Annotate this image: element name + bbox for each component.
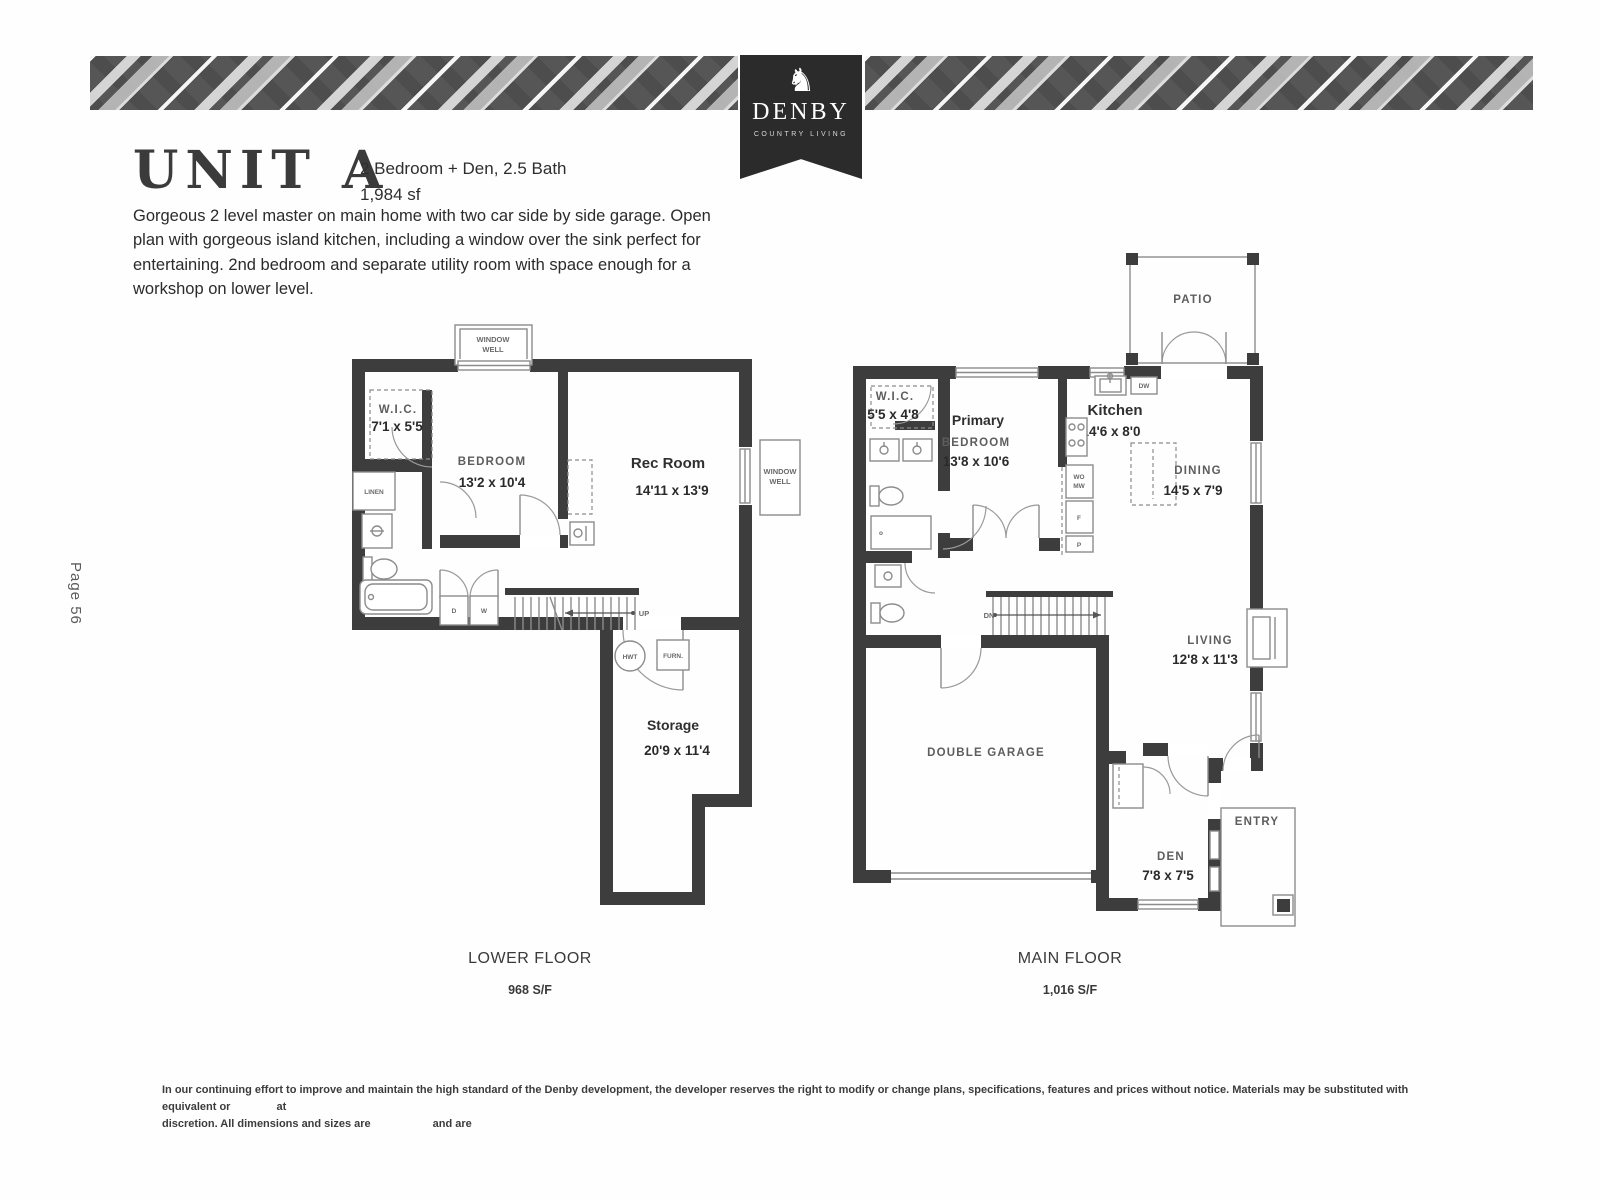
wall-oven-microwave — [1066, 465, 1093, 498]
svg-text:BEDROOM: BEDROOM — [942, 437, 1010, 449]
living-label: LIVING — [1187, 635, 1233, 647]
svg-text:Kitchen: Kitchen — [1087, 402, 1142, 419]
entry-post-core — [1277, 899, 1290, 912]
dining-label: DINING — [1174, 465, 1221, 477]
den-closet — [1113, 764, 1143, 808]
main-floor-name: MAIN FLOOR — [950, 950, 1190, 968]
lower-floor-plan: WINDOW WELL WINDOW WELL W.I.C. 7'1 x 5'5… — [340, 312, 810, 934]
svg-text:PATIO: PATIO — [1173, 294, 1212, 306]
double-garage: DOUBLE GARAGE — [886, 747, 1096, 883]
plaid-banner-right — [865, 56, 1533, 110]
storage-room: HWT FURN. Storage 20'9 x 11'4 — [615, 630, 710, 758]
svg-text:Primary: Primary — [952, 412, 1004, 428]
disclaimer-line1a: In our continuing effort to improve and … — [162, 1084, 1408, 1113]
unit-description: Gorgeous 2 level master on main home wit… — [133, 204, 713, 301]
powder-door-arc — [905, 563, 935, 593]
svg-text:W.I.C.: W.I.C. — [379, 404, 418, 416]
svg-text:BEDROOM: BEDROOM — [458, 456, 526, 468]
brand-name: DENBY — [740, 99, 862, 126]
svg-text:LINEN: LINEN — [364, 489, 384, 496]
horse-head-icon: ♞ — [740, 63, 862, 97]
french-door-left — [973, 505, 1006, 538]
svg-text:P: P — [1077, 542, 1082, 549]
disclaimer-line2b: and are — [433, 1118, 472, 1130]
garage-door-arc — [941, 648, 981, 688]
svg-text:13'8 x 10'6: 13'8 x 10'6 — [943, 454, 1010, 469]
stove — [1066, 418, 1087, 456]
svg-text:13'2 x 10'4: 13'2 x 10'4 — [459, 475, 526, 490]
lower-floor-area: 968 S/F — [420, 983, 640, 997]
brand-tagline: COUNTRY LIVING — [740, 131, 862, 138]
svg-text:DN: DN — [984, 611, 995, 620]
svg-text:W.I.C.: W.I.C. — [876, 391, 915, 403]
disclaimer: In our continuing effort to improve and … — [162, 1082, 1452, 1133]
svg-text:ENTRY: ENTRY — [1235, 816, 1280, 828]
svg-text:14'11 x 13'9: 14'11 x 13'9 — [635, 483, 708, 498]
svg-text:20'9 x 11'4: 20'9 x 11'4 — [644, 743, 710, 758]
svg-text:W: W — [481, 608, 488, 615]
svg-text:WO: WO — [1073, 474, 1084, 481]
svg-text:Storage: Storage — [647, 717, 699, 733]
svg-text:D: D — [452, 608, 457, 615]
patio-door-left — [1162, 332, 1194, 364]
lower-floor-name: LOWER FLOOR — [420, 950, 640, 968]
living-dims: 12'8 x 11'3 — [1172, 652, 1238, 667]
svg-text:7'8 x 7'5: 7'8 x 7'5 — [1142, 868, 1194, 883]
svg-text:MW: MW — [1073, 483, 1085, 490]
chase-dashed — [568, 460, 592, 514]
svg-text:DOUBLE GARAGE: DOUBLE GARAGE — [927, 747, 1045, 759]
bathtub — [360, 580, 432, 614]
rec-room: Rec Room 14'11 x 13'9 — [568, 455, 709, 545]
main-floor-caption: MAIN FLOOR 1,016 S/F — [950, 950, 1190, 997]
kitchen: Kitchen 14'6 x 8'0 DW WO MW F P — [1066, 373, 1176, 552]
fireplace — [1247, 609, 1287, 667]
window-well-top: WINDOW WELL — [455, 325, 532, 372]
sink — [875, 565, 901, 587]
plaid-banner-left — [90, 56, 738, 110]
brochure-page: ♞ DENBY COUNTRY LIVING UNIT A 2 Bedroom … — [0, 0, 1600, 1200]
brand-ribbon: ♞ DENBY COUNTRY LIVING — [740, 55, 862, 179]
svg-text:WELL: WELL — [769, 477, 791, 486]
page-number: Page 56 — [67, 562, 84, 625]
lower-exterior-walls — [352, 359, 752, 905]
unit-spec-line1: 2 Bedroom + Den, 2.5 Bath — [360, 156, 567, 182]
main-top-windows — [956, 366, 1227, 379]
toilet — [870, 486, 903, 506]
french-door-right — [1006, 505, 1039, 538]
svg-text:FURN.: FURN. — [663, 653, 683, 660]
main-floor-area: 1,016 S/F — [950, 983, 1190, 997]
window-well-right: WINDOW WELL — [739, 440, 800, 515]
den: DEN 7'8 x 7'5 — [1113, 756, 1219, 911]
patio: PATIO — [1126, 253, 1259, 365]
primary-bedroom: Primary BEDROOM 13'8 x 10'6 — [942, 412, 1039, 549]
toilet — [871, 603, 904, 623]
svg-text:F: F — [1077, 515, 1081, 522]
svg-text:o: o — [879, 530, 883, 537]
svg-text:WELL: WELL — [482, 345, 504, 354]
patio-door-right — [1194, 332, 1226, 364]
page-title: UNIT A — [133, 140, 389, 201]
svg-text:5'5 x 4'8: 5'5 x 4'8 — [867, 407, 919, 422]
den-closet-door-arc — [1143, 767, 1170, 794]
dining-dims: 14'5 x 7'9 — [1164, 483, 1223, 498]
svg-text:7'1 x 5'5: 7'1 x 5'5 — [371, 419, 423, 434]
den-door-arc — [1168, 756, 1208, 796]
laundry-door-right — [470, 570, 498, 598]
unit-specs: 2 Bedroom + Den, 2.5 Bath 1,984 sf — [360, 156, 567, 207]
lower-floor-caption: LOWER FLOOR 968 S/F — [420, 950, 640, 997]
svg-text:DEN: DEN — [1157, 851, 1185, 863]
entry-sidelight — [1210, 867, 1219, 891]
ensuite: o — [870, 439, 932, 549]
svg-text:WINDOW: WINDOW — [477, 335, 511, 344]
svg-text:DW: DW — [1139, 383, 1151, 390]
lower-bedroom: BEDROOM 13'2 x 10'4 — [458, 456, 560, 535]
up-arrow — [565, 610, 573, 617]
disclaimer-line2a: discretion. All dimensions and sizes are — [162, 1118, 371, 1130]
svg-text:14'6 x 8'0: 14'6 x 8'0 — [1082, 424, 1141, 439]
svg-text:UP: UP — [639, 609, 649, 618]
svg-text:WINDOW: WINDOW — [764, 467, 798, 476]
powder-room — [871, 563, 935, 623]
laundry-door-left — [440, 570, 468, 598]
toilet — [363, 557, 397, 581]
main-floor-plan: PATIO — [843, 243, 1313, 943]
entry-sidelight — [1210, 831, 1219, 859]
disclaimer-line1b: at — [276, 1101, 286, 1113]
kitchen-sink — [1095, 373, 1126, 395]
svg-text:HWT: HWT — [623, 654, 638, 661]
svg-text:Rec Room: Rec Room — [631, 455, 705, 472]
